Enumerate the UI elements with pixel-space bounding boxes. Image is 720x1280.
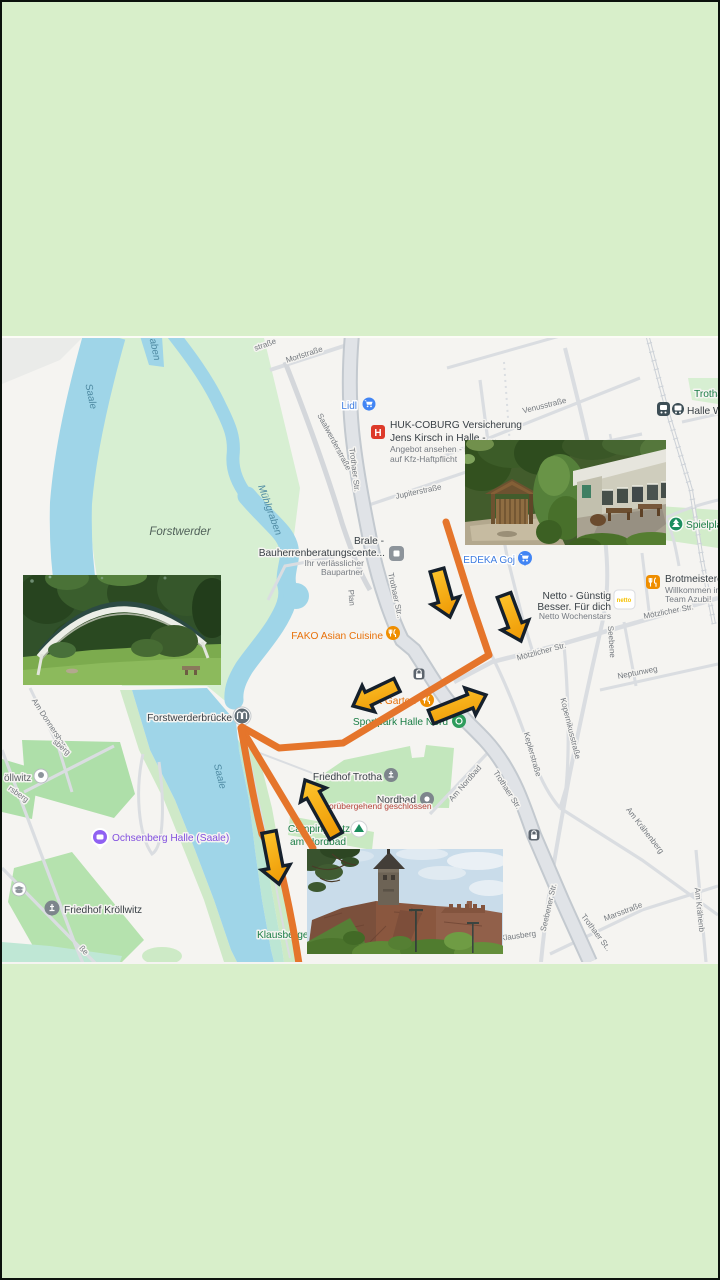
svg-text:Ochsenberg Halle (Saale): Ochsenberg Halle (Saale): [112, 833, 229, 844]
svg-text:Forstwerderbrücke: Forstwerderbrücke: [147, 713, 232, 724]
svg-text:Netto - Günstig: Netto - Günstig: [542, 591, 611, 602]
svg-text:auf Kfz-Haftpflicht: auf Kfz-Haftpflicht: [390, 454, 458, 464]
svg-text:Netto Wochenstars: Netto Wochenstars: [539, 611, 611, 621]
svg-text:öllwitz: öllwitz: [4, 773, 31, 784]
svg-text:Lidl: Lidl: [341, 401, 357, 412]
svg-text:Forstwerder: Forstwerder: [149, 526, 212, 538]
svg-text:Friedhof Trotha: Friedhof Trotha: [313, 772, 382, 783]
svg-text:orübergehend geschlossen: orübergehend geschlossen: [329, 801, 432, 811]
svg-text:HUK-COBURG Versicherung: HUK-COBURG Versicherung: [390, 420, 522, 431]
svg-text:H: H: [374, 428, 381, 439]
svg-text:EDEKA Goj: EDEKA Goj: [463, 555, 515, 566]
svg-text:Spielplat: Spielplat: [686, 520, 720, 531]
svg-text:Brotmeisterei: Brotmeisterei: [665, 574, 720, 585]
svg-text:Baupartner: Baupartner: [321, 567, 363, 577]
svg-text:Plan: Plan: [346, 589, 356, 606]
svg-text:Trotha: Trotha: [694, 389, 720, 400]
svg-text:Klausberge: Klausberge: [257, 930, 309, 941]
svg-text:FAKO Asian Cuisine: FAKO Asian Cuisine: [291, 631, 383, 642]
svg-text:Team Azubi!: Team Azubi!: [665, 594, 711, 604]
svg-text:Halle Wo: Halle Wo: [687, 406, 720, 417]
svg-text:Brale -: Brale -: [354, 536, 384, 547]
svg-text:am Nordbad: am Nordbad: [290, 837, 346, 848]
svg-text:Angebot ansehen - 5%: Angebot ansehen - 5%: [390, 444, 477, 454]
svg-text:netto: netto: [617, 598, 632, 604]
svg-text:Friedhof Kröllwitz: Friedhof Kröllwitz: [64, 905, 142, 916]
